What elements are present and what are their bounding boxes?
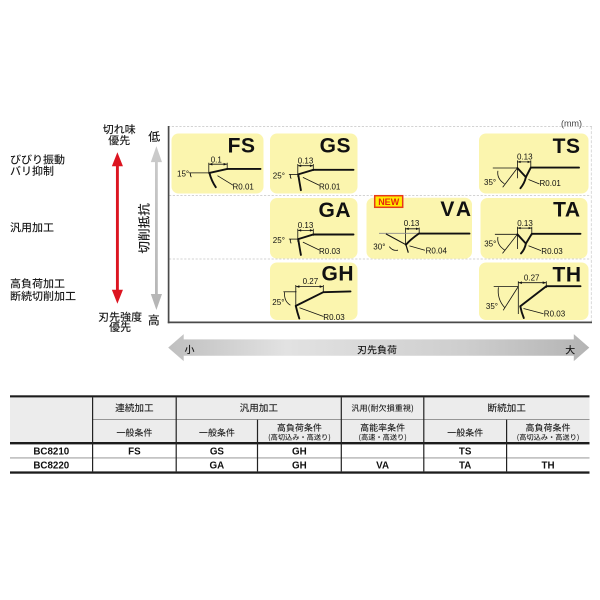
svg-text:35°: 35° bbox=[484, 178, 496, 187]
svg-text:R0.01: R0.01 bbox=[233, 183, 255, 192]
svg-text:TS: TS bbox=[553, 135, 581, 158]
svg-text:TH: TH bbox=[553, 264, 582, 287]
svg-text:0.13: 0.13 bbox=[517, 219, 533, 228]
svg-text:GH: GH bbox=[322, 263, 355, 286]
svg-text:25°: 25° bbox=[273, 172, 285, 181]
svg-text:GS: GS bbox=[210, 446, 225, 457]
svg-text:NEW: NEW bbox=[378, 197, 400, 207]
svg-text:BC8210: BC8210 bbox=[33, 446, 69, 457]
svg-text:GA: GA bbox=[319, 199, 352, 222]
svg-text:VA: VA bbox=[376, 460, 389, 471]
svg-text:R0.04: R0.04 bbox=[426, 246, 448, 255]
svg-text:30°: 30° bbox=[373, 242, 385, 251]
svg-text:0.27: 0.27 bbox=[524, 273, 540, 282]
svg-text:FS: FS bbox=[128, 446, 141, 457]
svg-text:25°: 25° bbox=[272, 298, 284, 307]
svg-text:0.13: 0.13 bbox=[298, 221, 314, 230]
svg-text:VA: VA bbox=[440, 198, 474, 221]
svg-text:0.27: 0.27 bbox=[303, 277, 319, 286]
svg-text:0.13: 0.13 bbox=[517, 153, 533, 162]
svg-text:TA: TA bbox=[459, 460, 471, 471]
svg-text:0.1: 0.1 bbox=[211, 155, 223, 164]
svg-text:35°: 35° bbox=[486, 302, 498, 311]
svg-text:TA: TA bbox=[553, 198, 580, 221]
svg-text:25°: 25° bbox=[273, 236, 285, 245]
svg-text:R0.03: R0.03 bbox=[323, 313, 345, 322]
svg-text:TH: TH bbox=[541, 460, 554, 471]
svg-text:R0.03: R0.03 bbox=[319, 247, 341, 256]
svg-text:0.13: 0.13 bbox=[404, 219, 420, 228]
svg-text:BC8220: BC8220 bbox=[33, 460, 69, 471]
svg-text:R0.03: R0.03 bbox=[541, 247, 563, 256]
svg-text:TS: TS bbox=[459, 446, 472, 457]
svg-text:0.13: 0.13 bbox=[298, 156, 314, 165]
svg-text:35°: 35° bbox=[484, 239, 496, 248]
svg-text:GA: GA bbox=[210, 460, 225, 471]
svg-text:FS: FS bbox=[228, 135, 256, 158]
svg-text:GH: GH bbox=[292, 446, 307, 457]
svg-text:GH: GH bbox=[292, 460, 307, 471]
svg-text:GS: GS bbox=[320, 135, 351, 158]
svg-text:(mm): (mm) bbox=[561, 119, 582, 129]
svg-text:R0.01: R0.01 bbox=[540, 179, 562, 188]
svg-text:R0.03: R0.03 bbox=[544, 309, 566, 318]
svg-text:R0.01: R0.01 bbox=[319, 182, 341, 191]
svg-text:15°: 15° bbox=[177, 170, 189, 179]
